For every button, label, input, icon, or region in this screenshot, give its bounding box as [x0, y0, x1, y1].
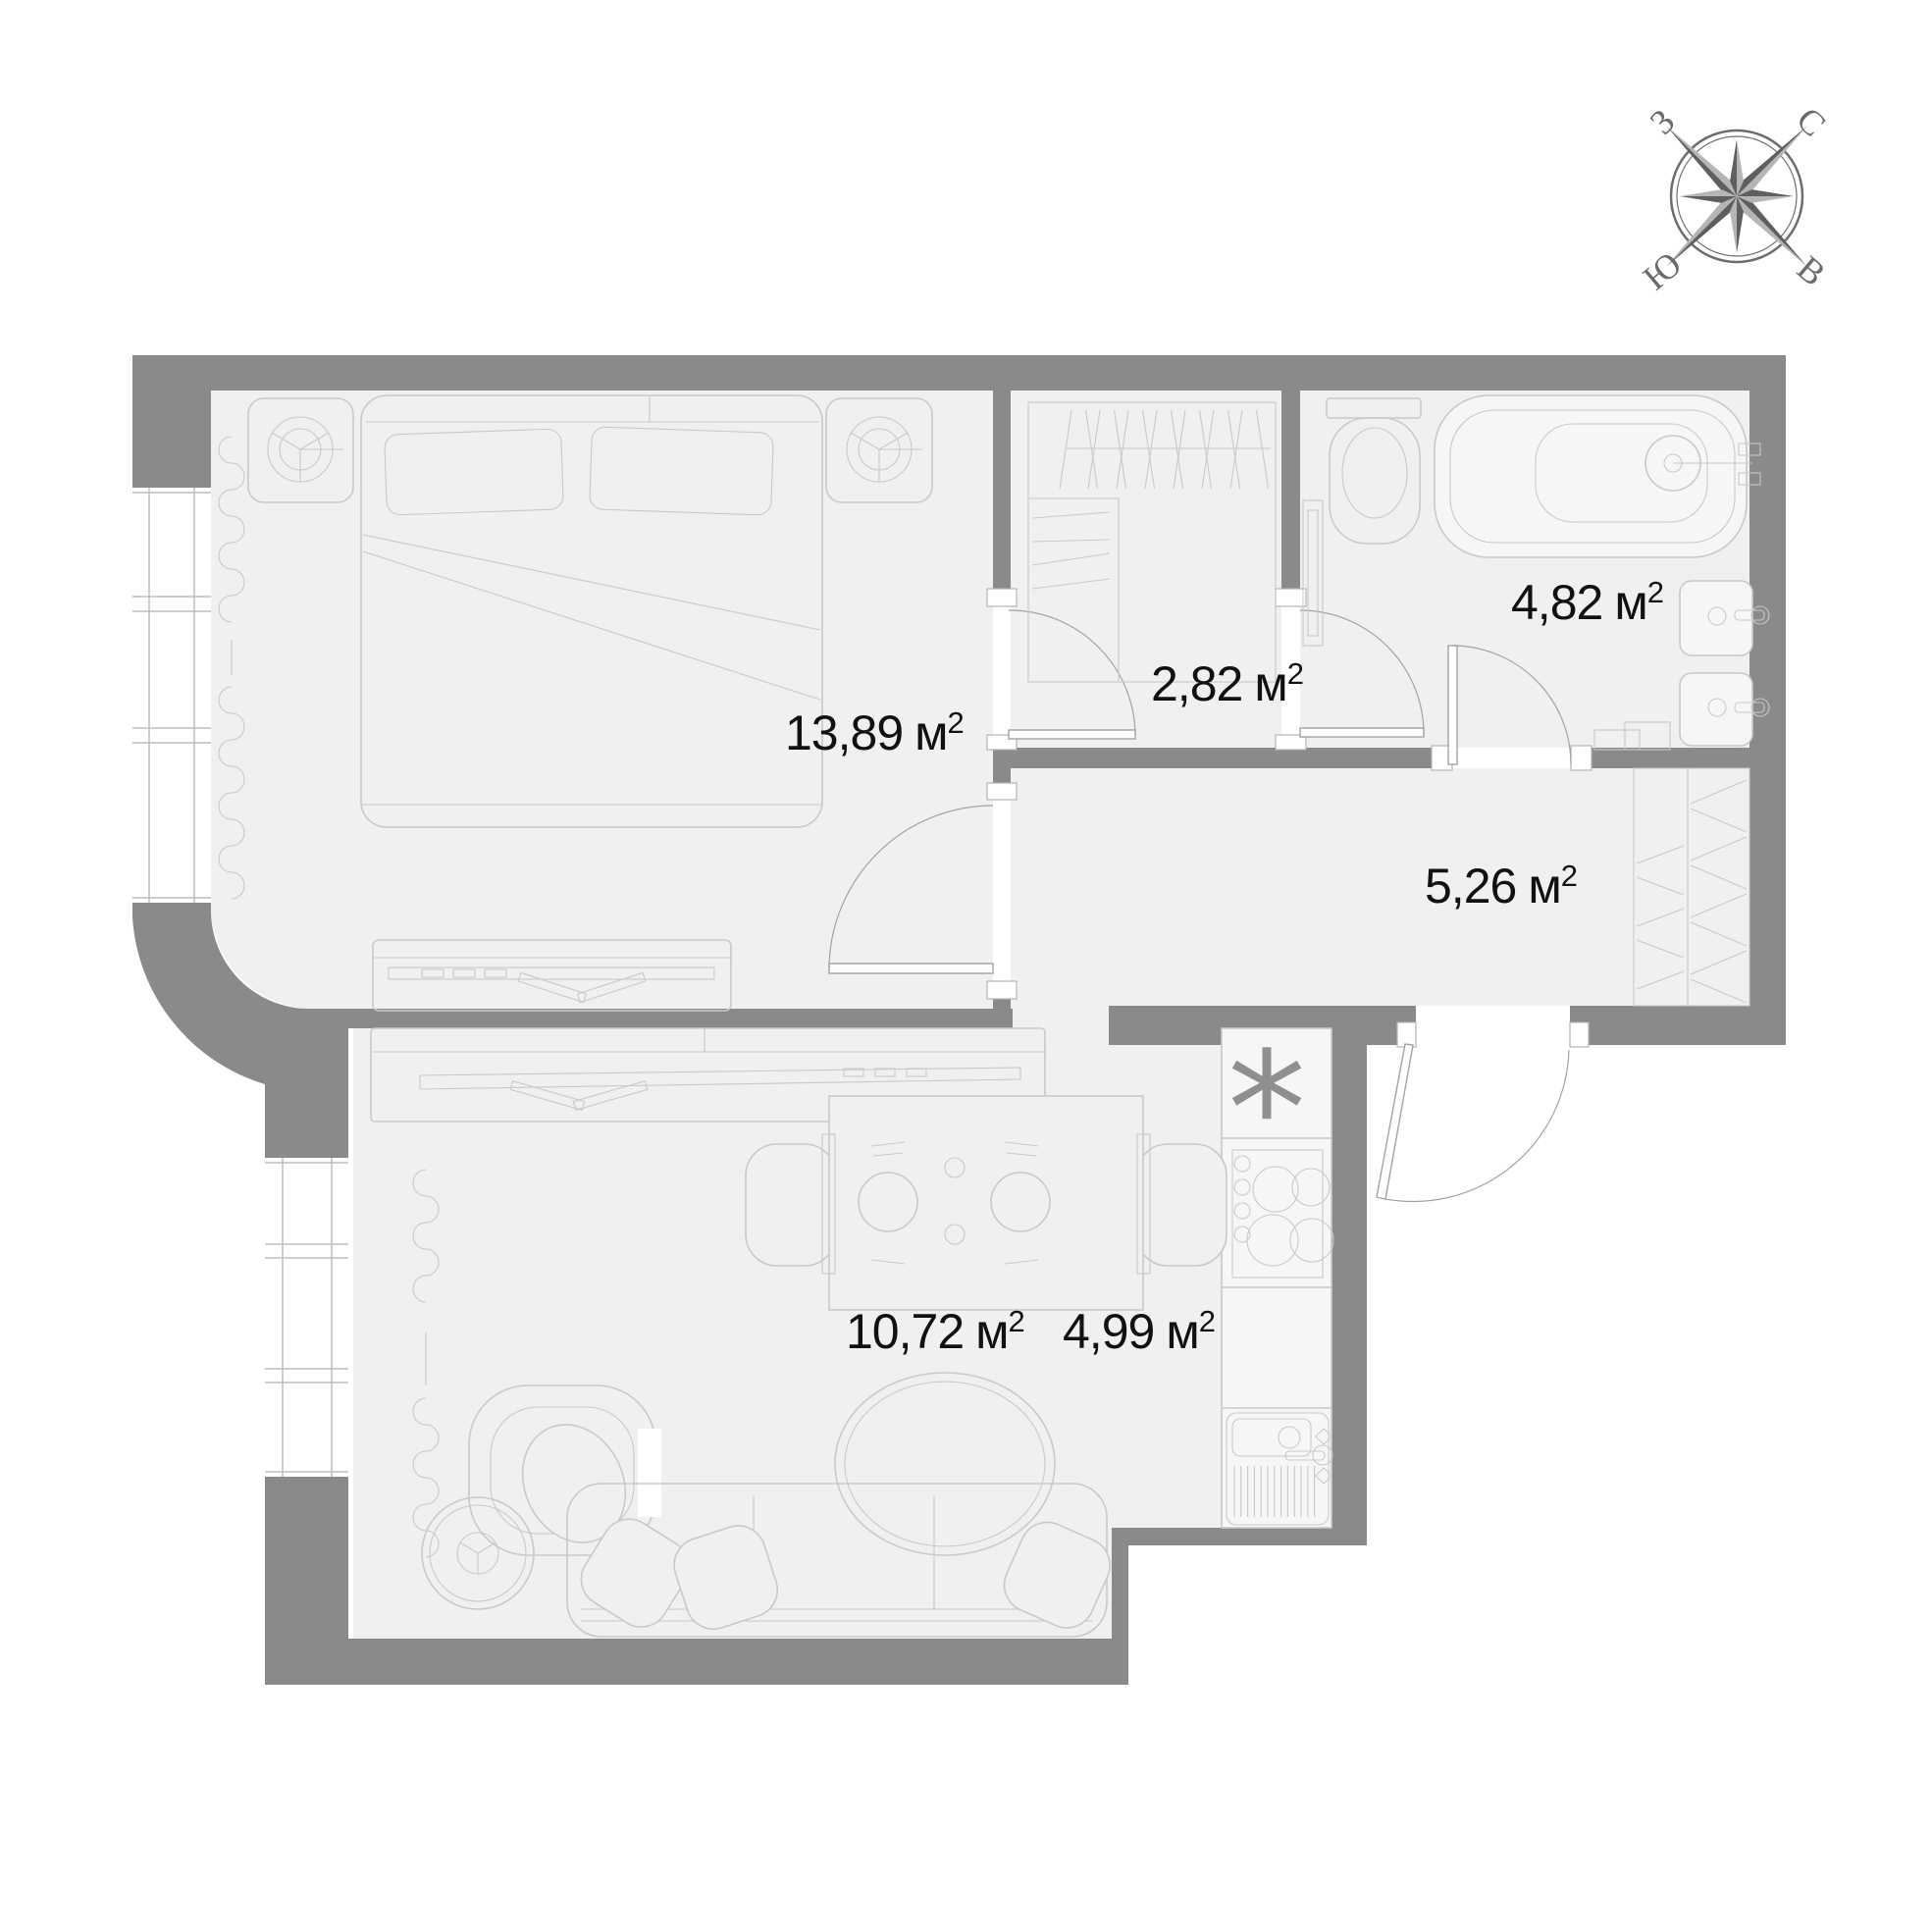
room-area-label-hallway: 5,26м2 [1425, 858, 1577, 914]
bedroom-window [132, 488, 211, 903]
wall-wardrobe-bathroom [1281, 391, 1300, 606]
wall-top [132, 355, 1786, 391]
floor-plan-drawing: З С Ю В [0, 0, 1932, 1932]
wall-bedroom-bottom [314, 1009, 1013, 1028]
kitchen-vent-symbol: * [1213, 1017, 1321, 1144]
room-area-label-bathroom: 4,82м2 [1511, 574, 1663, 631]
entrance-door [1377, 1044, 1569, 1201]
wall-kitchen-right [1332, 1045, 1367, 1545]
wall-step-vertical [1112, 1528, 1128, 1685]
bedroom-floor [211, 391, 993, 1009]
living-room-window [265, 1158, 348, 1477]
room-area-label-kitchen: 4,99м2 [1063, 1303, 1215, 1360]
wall-bedroom-wardrobe-a [993, 391, 1011, 606]
wall-hall-top-left [993, 748, 1452, 768]
compass-rose: З С Ю В [1636, 99, 1834, 297]
compass-star [1666, 126, 1807, 267]
wall-bottom [265, 1639, 1128, 1685]
wall-bedroom-left-upper [132, 355, 211, 488]
bathtub [1435, 395, 1760, 557]
wall-hall-top-right [1571, 748, 1749, 768]
wall-kitchen-bottom [1112, 1528, 1367, 1545]
room-area-label-bedroom: 13,89м2 [785, 705, 964, 761]
room-area-label-wardrobe: 2,82м2 [1151, 655, 1303, 712]
wall-hall-bottom-right [1570, 1006, 1786, 1045]
hallway-floor [1011, 748, 1749, 1006]
room-area-label-living-room: 10,72м2 [846, 1303, 1024, 1360]
floor-plan-canvas: З С Ю В 13,89м2 2,82м2 4,82м2 5,26м2 10,… [0, 0, 1932, 1932]
